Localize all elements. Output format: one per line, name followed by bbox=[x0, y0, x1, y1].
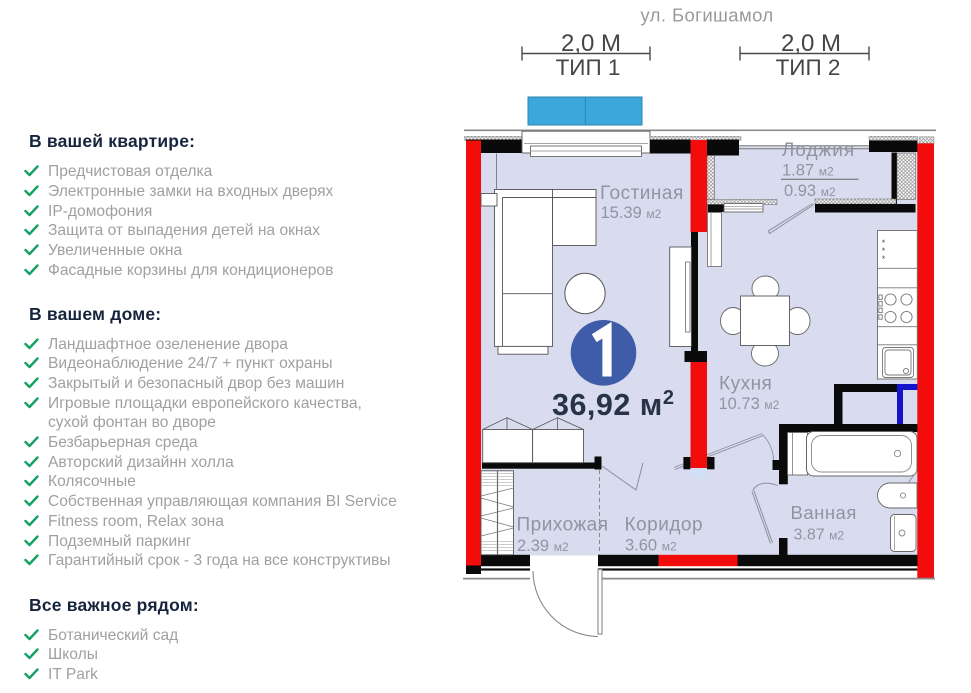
svg-text:Гостиная: Гостиная bbox=[600, 183, 684, 204]
svg-text:2,0 М: 2,0 М bbox=[561, 30, 621, 57]
svg-text:ТИП 1: ТИП 1 bbox=[556, 55, 621, 80]
svg-text:Лоджия: Лоджия bbox=[782, 140, 855, 161]
svg-text:10.73 м2: 10.73 м2 bbox=[719, 395, 780, 413]
svg-text:Коридор: Коридор bbox=[625, 515, 704, 536]
svg-text:Ванная: Ванная bbox=[791, 502, 857, 523]
svg-text:15.39 м2: 15.39 м2 bbox=[601, 204, 662, 222]
svg-text:*: * bbox=[882, 254, 886, 264]
svg-text:0.93 м2: 0.93 м2 bbox=[784, 182, 836, 200]
svg-text:3.60 м2: 3.60 м2 bbox=[625, 537, 677, 555]
svg-text:3.87 м2: 3.87 м2 bbox=[794, 527, 845, 544]
svg-text:Прихожая: Прихожая bbox=[517, 515, 609, 536]
svg-text:Кухня: Кухня bbox=[719, 374, 772, 395]
svg-text:ул. Богишамол: ул. Богишамол bbox=[640, 5, 773, 26]
svg-text:36,92 м2: 36,92 м2 bbox=[552, 387, 675, 422]
svg-text:ТИП 2: ТИП 2 bbox=[776, 55, 841, 80]
svg-text:2,0 М: 2,0 М bbox=[781, 30, 841, 57]
svg-text:1.87 м2: 1.87 м2 bbox=[782, 162, 834, 180]
svg-text:2.39 м2: 2.39 м2 bbox=[517, 537, 569, 555]
